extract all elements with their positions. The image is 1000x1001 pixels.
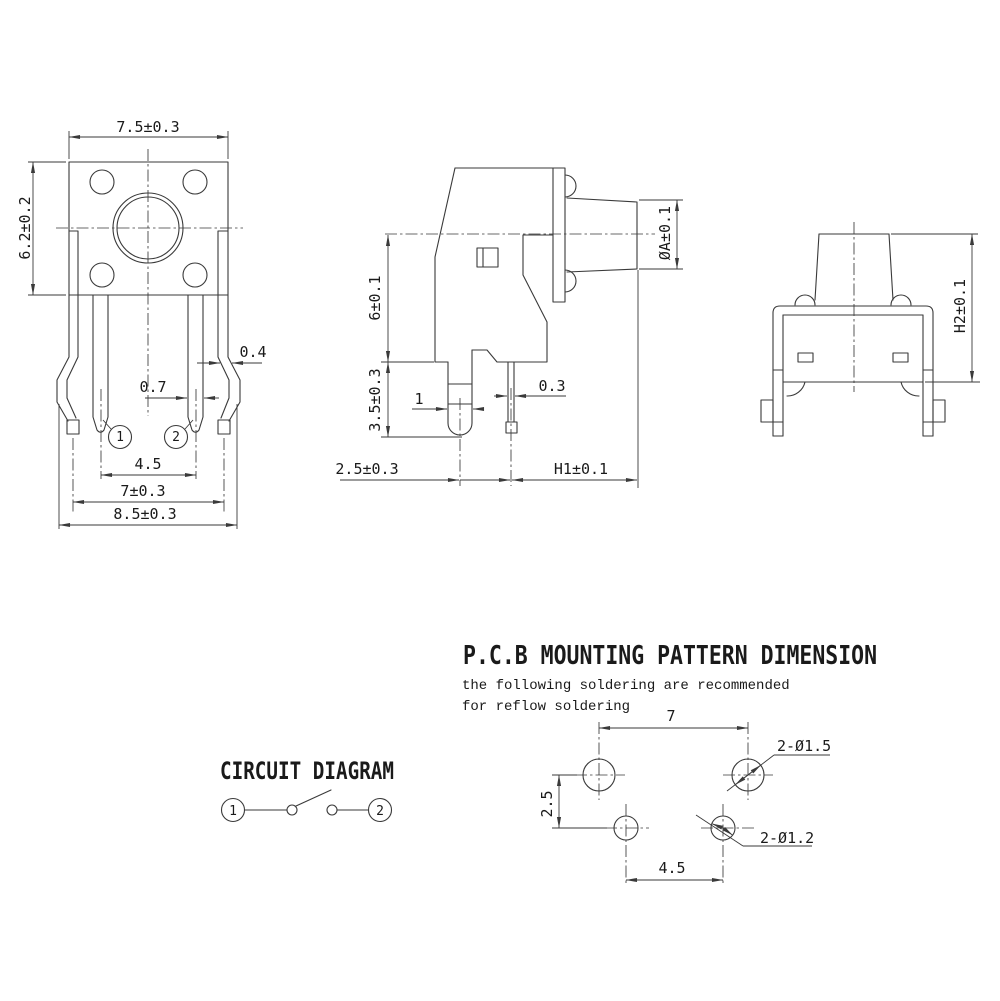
pin-2-number: 2 [172, 430, 180, 445]
dim-leg-pitch: 7±0.3 [73, 482, 224, 502]
locating-boss-right [891, 295, 911, 305]
push-button-side [567, 198, 637, 272]
pcb-note-line1: the following soldering are recommended [462, 678, 790, 694]
pin-2-balloon: 2 [165, 420, 194, 449]
metal-frame-top [773, 306, 933, 313]
side-body-left [435, 168, 455, 362]
bracket-leg-left [57, 295, 79, 512]
side-hole-right [893, 353, 908, 362]
dim-button-diameter-label: ØA±0.1 [656, 206, 674, 260]
dim-pin-thickness-label: 0.3 [538, 377, 565, 395]
rear-leg-left [761, 313, 783, 436]
dim-leg-pitch-label: 7±0.3 [120, 482, 165, 500]
contact-left [287, 805, 297, 815]
dim-peg-to-pin-label: 2.5±0.3 [335, 460, 398, 478]
mounting-boss-bottom-right [183, 263, 207, 287]
dim-peg-width-label: 1 [414, 390, 423, 408]
face-plate [553, 168, 565, 302]
rear-leg-right [923, 313, 945, 436]
rear-view: H2±0.1 [761, 222, 980, 436]
locating-boss-top [565, 175, 576, 197]
pcb-note-line2: for reflow soldering [462, 699, 630, 715]
dim-row-pitch: 2.5 [538, 775, 559, 828]
dim-pin-hole-pitch: 4.5 [626, 859, 723, 880]
dim-pin-thickness: 0.3 [494, 377, 566, 396]
terminal-1-number: 1 [229, 804, 237, 819]
dim-body-height-label: 6±0.1 [366, 275, 384, 320]
pin-1-number: 1 [116, 430, 124, 445]
dim-h1-label: H1±0.1 [554, 460, 608, 478]
dim-button-diameter: ØA±0.1 [639, 200, 683, 269]
tact-switch-technical-drawing: 1 2 7.5±0.3 6.2±0.2 0.4 0.7 [0, 0, 1000, 1001]
dim-row-pitch-label: 2.5 [538, 790, 556, 817]
side-hole-left [798, 353, 813, 362]
dim-front-height-label: 6.2±0.2 [16, 196, 34, 259]
dim-peg-to-pin: 2.5±0.3 [335, 460, 510, 480]
dim-pin-length-label: 3.5±0.3 [366, 368, 384, 431]
dim-pin-pitch-label: 4.5 [134, 455, 161, 473]
dim-body-height: 6±0.1 [366, 235, 388, 362]
leg-hole-callout: 2-Ø1.5 [727, 737, 831, 791]
pcb-pattern-title: P.C.B MOUNTING PATTERN DIMENSION [463, 641, 877, 671]
dim-pin-width: 0.7 [139, 378, 219, 398]
terminal-pin-side [506, 362, 517, 486]
side-body-right [472, 235, 553, 362]
mounting-boss-bottom-left [90, 263, 114, 287]
dim-front-width: 7.5±0.3 [69, 118, 228, 159]
dim-bracket-thickness: 0.4 [197, 343, 267, 363]
dim-h2: H2±0.1 [891, 234, 980, 382]
circuit-diagram-title: CIRCUIT DIAGRAM [220, 757, 394, 785]
terminal-pin-2 [188, 295, 203, 479]
front-view: 1 2 7.5±0.3 6.2±0.2 0.4 0.7 [16, 118, 267, 529]
switch-arm [296, 790, 331, 806]
contact-right [327, 805, 337, 815]
mounting-boss-top-left [90, 170, 114, 194]
pin-1-balloon: 1 [103, 420, 132, 449]
terminal-2-number: 2 [376, 804, 384, 819]
support-peg [448, 350, 472, 486]
dim-pin-hole-pitch-label: 4.5 [658, 859, 685, 877]
mounting-boss-top-right [183, 170, 207, 194]
circuit-diagram: CIRCUIT DIAGRAM 1 2 [220, 757, 394, 822]
side-view: 6±0.1 3.5±0.3 1 0.3 2.5±0.3 H1±0.1 [335, 168, 683, 488]
front-body-outline [69, 162, 228, 295]
pcb-pattern: P.C.B MOUNTING PATTERN DIMENSION the fol… [462, 641, 877, 884]
leg-hole-callout-label: 2-Ø1.5 [777, 737, 831, 755]
dim-front-width-label: 7.5±0.3 [116, 118, 179, 136]
locating-boss-bottom [565, 270, 576, 292]
drawing-page: 1 2 7.5±0.3 6.2±0.2 0.4 0.7 [0, 0, 1000, 1001]
dim-pin-width-label: 0.7 [139, 378, 166, 396]
locating-boss-left [795, 295, 815, 305]
dim-h1: H1±0.1 [512, 460, 637, 480]
dim-h2-label: H2±0.1 [951, 279, 969, 333]
dim-front-height: 6.2±0.2 [16, 162, 66, 295]
pin-hole-callout-label: 2-Ø1.2 [760, 829, 814, 847]
dim-leg-hole-pitch-label: 7 [666, 707, 675, 725]
dim-overall-width-label: 8.5±0.3 [113, 505, 176, 523]
terminal-pin-1 [93, 295, 108, 479]
dim-pin-pitch: 4.5 [101, 455, 196, 475]
body-window [477, 248, 498, 267]
dim-bracket-thickness-label: 0.4 [239, 343, 266, 361]
